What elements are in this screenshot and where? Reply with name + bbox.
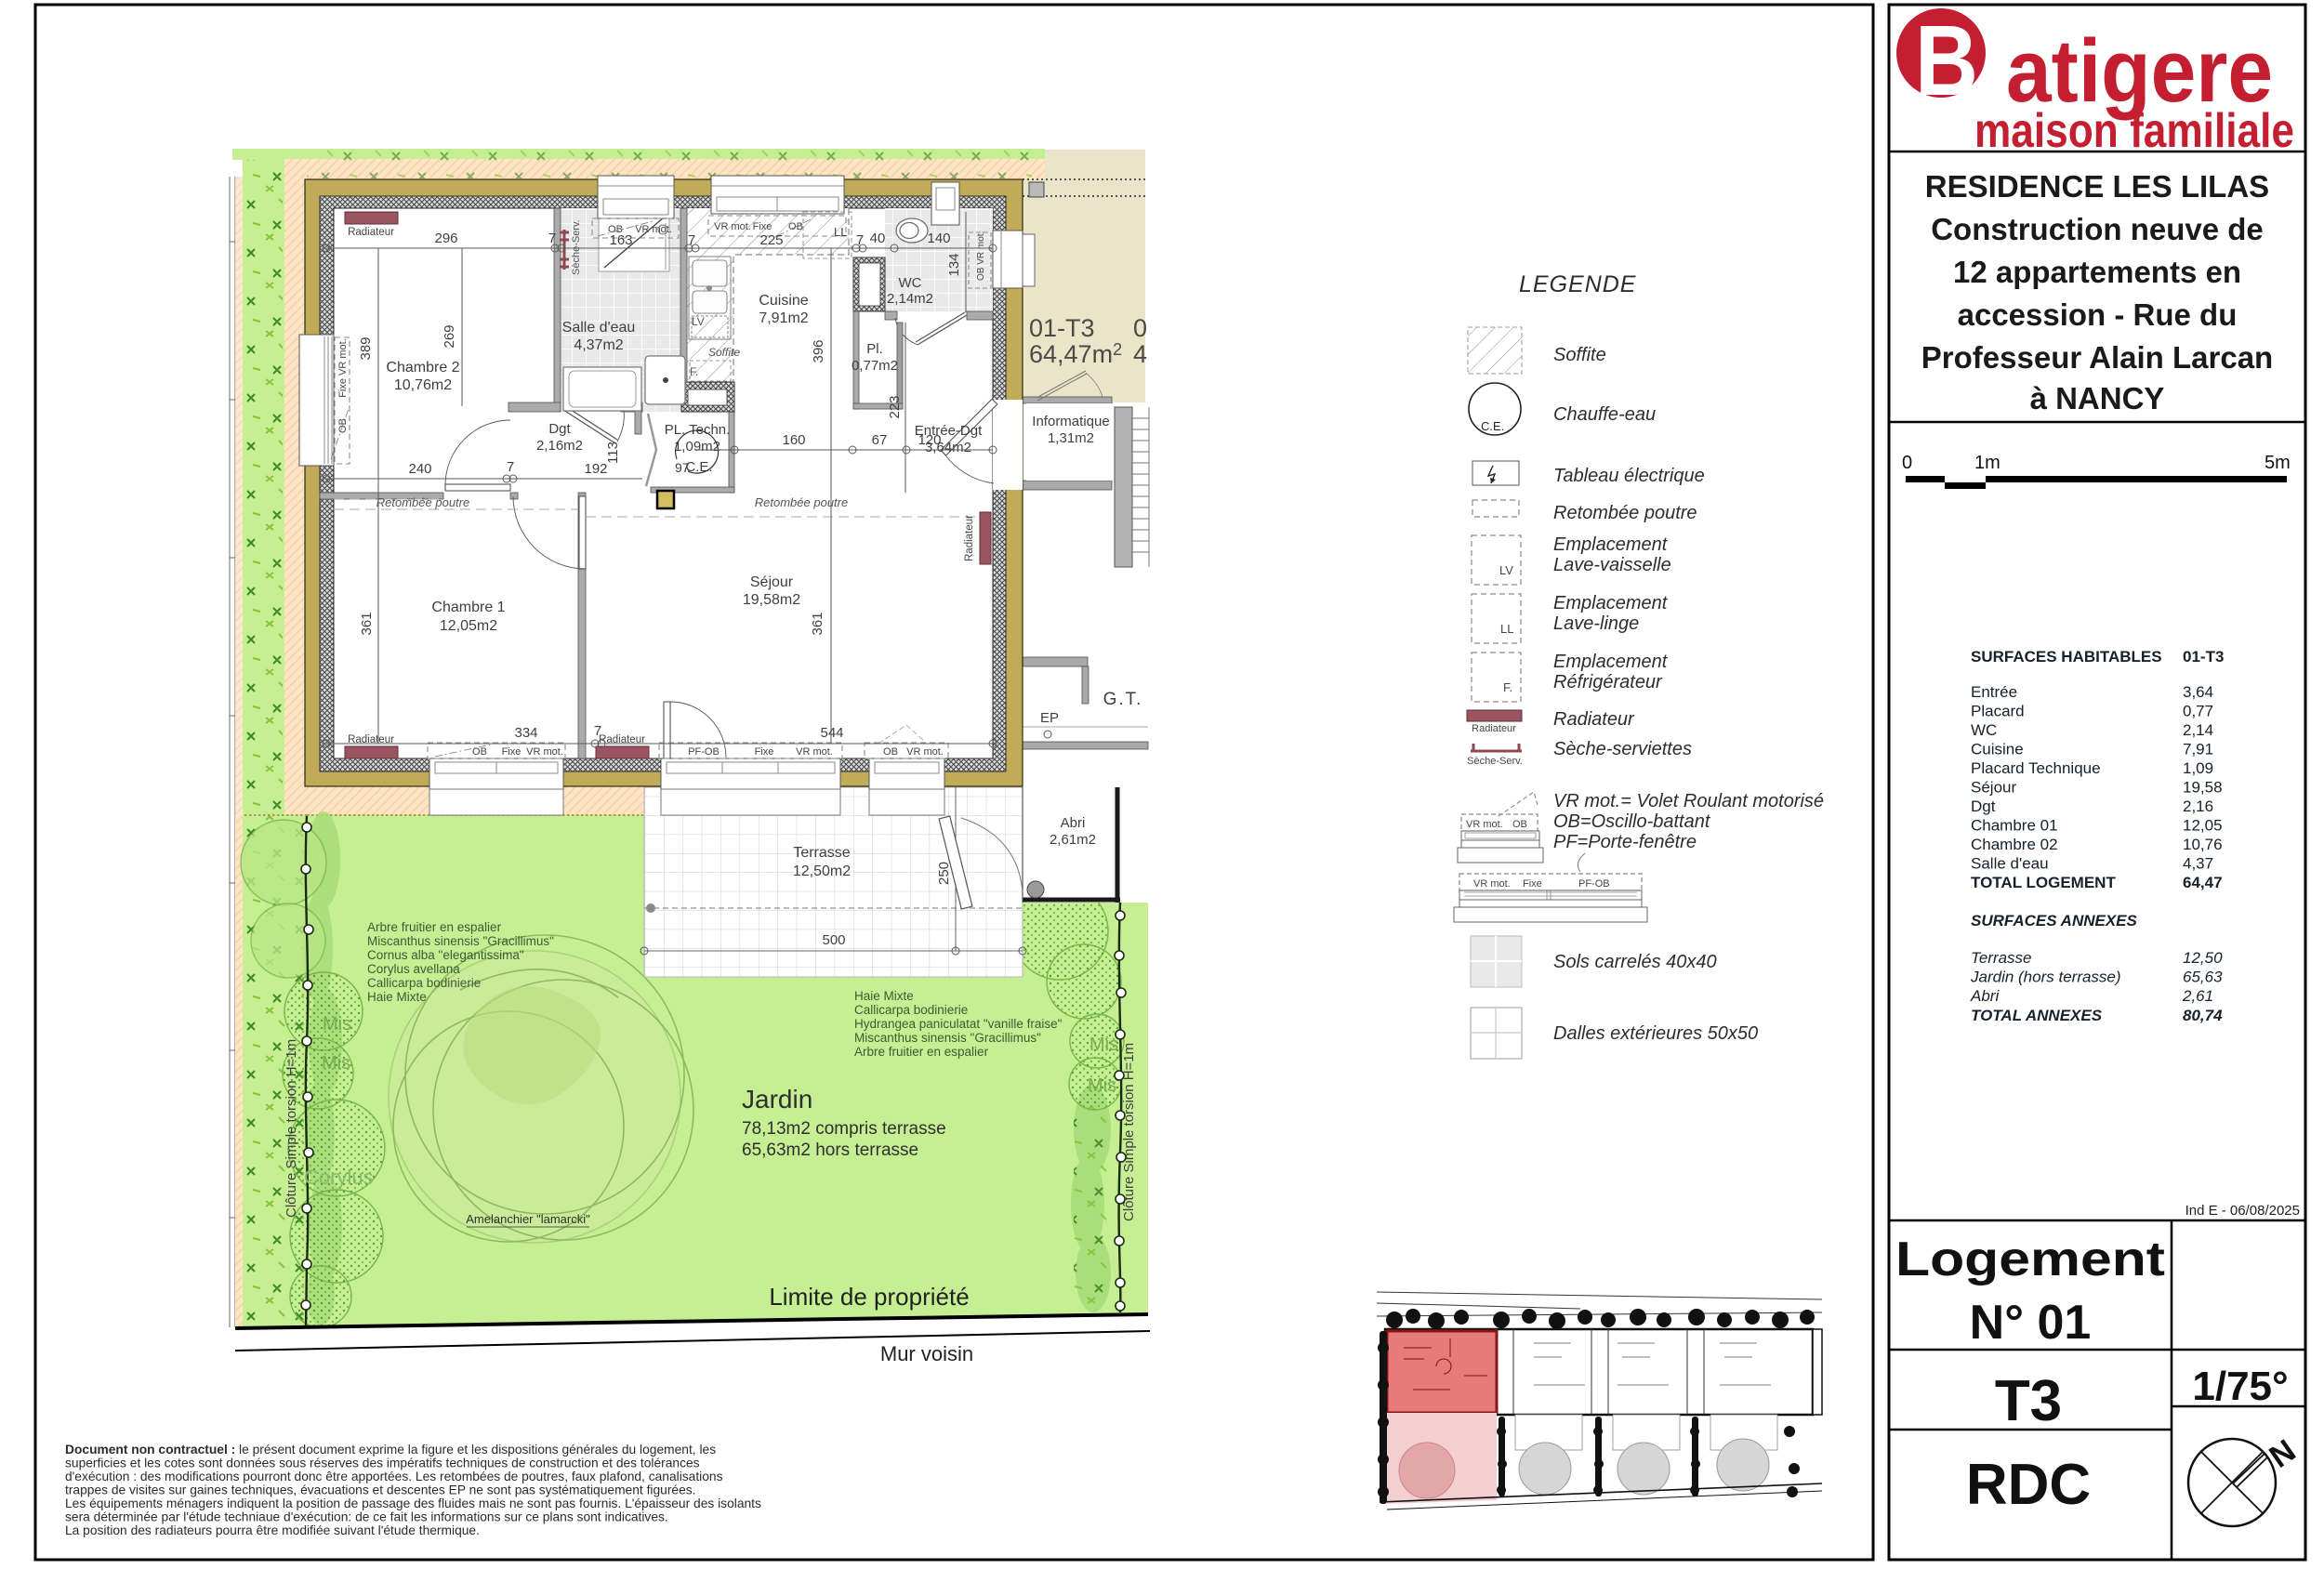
- svg-text:67: 67: [872, 432, 888, 448]
- svg-text:0,77m2: 0,77m2: [852, 358, 898, 374]
- svg-text:12,05m2: 12,05m2: [440, 618, 497, 634]
- svg-text:Logement: Logement: [1895, 1233, 2165, 1286]
- svg-text:PF-OB: PF-OB: [1578, 878, 1610, 890]
- svg-text:LL: LL: [1500, 622, 1513, 636]
- svg-text:Radiateur: Radiateur: [1553, 709, 1635, 730]
- svg-text:trappes de visites sur gaines: trappes de visites sur gaines techniques…: [65, 1483, 696, 1497]
- svg-text:Informatique: Informatique: [1032, 414, 1109, 429]
- svg-text:sera déterminée par l'étude te: sera déterminée par l'étude techniaue d'…: [65, 1510, 668, 1524]
- svg-text:7,91m2: 7,91m2: [759, 310, 808, 326]
- svg-text:Mur voisin: Mur voisin: [880, 1342, 973, 1365]
- svg-text:160: 160: [782, 432, 805, 448]
- svg-text:Fixe VR mot.: Fixe VR mot.: [337, 338, 349, 398]
- svg-text:VR mot.: VR mot.: [714, 221, 751, 232]
- svg-text:240: 240: [408, 461, 431, 477]
- svg-text:WC: WC: [1971, 721, 1997, 739]
- svg-text:OB=Oscillo-battant: OB=Oscillo-battant: [1553, 811, 1711, 832]
- svg-text:à NANCY: à NANCY: [2030, 381, 2165, 415]
- svg-text:Arbre fruitier en espalier: Arbre fruitier en espalier: [854, 1045, 989, 1059]
- svg-text:VR mot.: VR mot.: [635, 224, 672, 235]
- svg-text:RESIDENCE LES LILAS: RESIDENCE LES LILAS: [1925, 169, 2269, 204]
- svg-text:Chauffe-eau: Chauffe-eau: [1553, 404, 1656, 425]
- svg-text:Retombée poutre: Retombée poutre: [1553, 503, 1697, 523]
- svg-text:OB VR mot.: OB VR mot.: [976, 231, 986, 281]
- svg-text:VR mot.: VR mot.: [1466, 819, 1503, 830]
- svg-text:Sèche-Serv.: Sèche-Serv.: [571, 219, 582, 275]
- svg-text:Limite de propriété: Limite de propriété: [769, 1283, 969, 1311]
- svg-text:01-T3: 01-T3: [1029, 314, 1095, 342]
- svg-text:225: 225: [759, 232, 783, 248]
- svg-text:Haie Mixte: Haie Mixte: [854, 989, 914, 1003]
- svg-text:361: 361: [359, 612, 375, 635]
- svg-text:2,14: 2,14: [2183, 721, 2213, 739]
- svg-text:10,76m2: 10,76m2: [394, 377, 452, 393]
- svg-text:Jardin (hors terrasse): Jardin (hors terrasse): [1970, 969, 2121, 986]
- svg-text:80,74: 80,74: [2183, 1007, 2223, 1024]
- svg-text:Réfrigérateur: Réfrigérateur: [1553, 672, 1663, 692]
- svg-text:SURFACES HABITABLES: SURFACES HABITABLES: [1971, 648, 2162, 666]
- svg-text:134: 134: [946, 253, 962, 276]
- svg-text:Mis: Mis: [1088, 1075, 1116, 1096]
- svg-text:T3: T3: [1995, 1369, 2062, 1433]
- svg-text:Miscanthus sinensis "Gracillim: Miscanthus sinensis "Gracillimus": [367, 934, 554, 948]
- svg-text:2,16m2: 2,16m2: [536, 438, 583, 454]
- svg-text:64,47: 64,47: [2183, 874, 2223, 891]
- svg-text:01-T3: 01-T3: [2183, 648, 2224, 666]
- svg-text:OB: OB: [883, 746, 898, 758]
- svg-text:LEGENDE: LEGENDE: [1519, 271, 1636, 297]
- svg-text:Fixe: Fixe: [1523, 878, 1542, 890]
- svg-text:7,91: 7,91: [2183, 741, 2213, 758]
- svg-text:Les équipements ménagers indiq: Les équipements ménagers indiquent la po…: [65, 1496, 761, 1510]
- svg-text:Soffite: Soffite: [1553, 345, 1606, 365]
- svg-text:140: 140: [927, 231, 950, 246]
- svg-text:113: 113: [605, 442, 621, 464]
- svg-text:Placard Technique: Placard Technique: [1971, 759, 2101, 777]
- svg-text:Fixe: Fixe: [502, 746, 522, 758]
- svg-text:LV: LV: [692, 315, 705, 328]
- svg-text:Abri: Abri: [1061, 815, 1086, 831]
- svg-text:WC: WC: [899, 275, 922, 291]
- svg-text:Dgt: Dgt: [548, 421, 571, 437]
- svg-text:Corylus avellana: Corylus avellana: [367, 962, 460, 976]
- svg-text:Ind E - 06/08/2025: Ind E - 06/08/2025: [2185, 1203, 2300, 1219]
- svg-text:Tableau électrique: Tableau électrique: [1553, 466, 1705, 486]
- svg-text:Cornus alba "elegantissima": Cornus alba "elegantissima": [367, 948, 524, 962]
- svg-text:Construction neuve de: Construction neuve de: [1931, 212, 2264, 246]
- svg-text:Callicarpa bodinierie: Callicarpa bodinierie: [367, 976, 481, 990]
- svg-text:Radiateur: Radiateur: [1472, 723, 1516, 734]
- svg-text:10,76: 10,76: [2183, 836, 2223, 853]
- svg-text:VR mot.= Volet Roulant motoris: VR mot.= Volet Roulant motorisé: [1553, 791, 1824, 811]
- svg-text:4: 4: [1133, 340, 1147, 368]
- svg-text:VR mot.: VR mot.: [796, 746, 833, 758]
- svg-text:Emplacement: Emplacement: [1553, 652, 1669, 672]
- svg-text:Dalles extérieures 50x50: Dalles extérieures 50x50: [1553, 1023, 1758, 1044]
- svg-text:1,09: 1,09: [2183, 759, 2213, 777]
- svg-text:12 appartements en: 12 appartements en: [1953, 255, 2241, 289]
- svg-text:maison familiale: maison familiale: [1974, 104, 2294, 158]
- svg-text:Sèche-Serv.: Sèche-Serv.: [1467, 756, 1523, 767]
- svg-text:2,61m2: 2,61m2: [1050, 832, 1096, 848]
- svg-text:Arbre fruitier en espalier: Arbre fruitier en espalier: [367, 920, 502, 934]
- svg-text:Miscanthus sinensis "Gracillim: Miscanthus sinensis "Gracillimus": [854, 1031, 1041, 1045]
- svg-text:Radiateur: Radiateur: [964, 515, 975, 561]
- svg-text:1/75°: 1/75°: [2192, 1364, 2288, 1409]
- svg-text:VR mot.: VR mot.: [1473, 878, 1511, 890]
- svg-text:La position des radiateurs pou: La position des radiateurs pourra être m…: [65, 1523, 480, 1537]
- svg-text:C.E.: C.E.: [685, 459, 712, 475]
- svg-text:0: 0: [1902, 453, 1912, 473]
- svg-text:12,05: 12,05: [2183, 817, 2223, 835]
- svg-text:223: 223: [887, 395, 903, 418]
- svg-text:VR mot.: VR mot.: [906, 746, 944, 758]
- svg-text:269: 269: [442, 324, 457, 348]
- svg-text:PF=Porte-fenêtre: PF=Porte-fenêtre: [1553, 832, 1697, 852]
- svg-text:120: 120: [918, 432, 941, 448]
- svg-text:Emplacement: Emplacement: [1553, 593, 1669, 613]
- svg-text:Pl.: Pl.: [866, 341, 883, 357]
- svg-text:Chambre 1: Chambre 1: [431, 600, 505, 615]
- svg-text:7: 7: [507, 459, 514, 475]
- svg-text:19,58: 19,58: [2183, 779, 2223, 797]
- svg-text:192: 192: [584, 461, 607, 477]
- svg-text:VR mot.: VR mot.: [526, 746, 563, 758]
- svg-text:Corylus: Corylus: [304, 1166, 374, 1189]
- svg-text:78,13m2 compris terrasse: 78,13m2 compris terrasse: [742, 1119, 946, 1139]
- svg-text:0: 0: [1133, 314, 1147, 342]
- svg-text:Terrasse: Terrasse: [1971, 949, 2032, 967]
- svg-text:5m: 5m: [2265, 453, 2291, 473]
- svg-text:500: 500: [822, 932, 845, 948]
- svg-text:OB: OB: [1512, 819, 1527, 830]
- svg-text:Mis: Mis: [1089, 1035, 1118, 1055]
- svg-text:LL: LL: [834, 225, 847, 239]
- svg-text:65,63: 65,63: [2183, 969, 2223, 986]
- svg-text:Chambre 2: Chambre 2: [386, 360, 459, 376]
- svg-text:12,50m2: 12,50m2: [793, 864, 851, 879]
- svg-text:Placard: Placard: [1971, 703, 2025, 720]
- svg-text:Radiateur: Radiateur: [348, 227, 394, 238]
- svg-text:TOTAL LOGEMENT: TOTAL LOGEMENT: [1971, 874, 2116, 891]
- svg-text:Clôture Simple torsion H=1m: Clôture Simple torsion H=1m: [1121, 1043, 1137, 1221]
- svg-text:1m: 1m: [1974, 453, 2000, 473]
- svg-text:Séjour: Séjour: [1971, 779, 2016, 797]
- svg-text:65,63m2 hors terrasse: 65,63m2 hors terrasse: [742, 1140, 918, 1160]
- svg-text:334: 334: [514, 725, 537, 741]
- svg-text:Cuisine: Cuisine: [1971, 741, 2024, 758]
- svg-text:Amelanchier "lamarcki": Amelanchier "lamarcki": [466, 1212, 590, 1226]
- svg-text:Chambre 02: Chambre 02: [1971, 836, 2058, 853]
- svg-text:F.: F.: [1503, 680, 1512, 694]
- svg-text:Haie Mixte: Haie Mixte: [367, 990, 427, 1004]
- svg-text:250: 250: [936, 862, 952, 885]
- svg-text:64,47m2: 64,47m2: [1029, 340, 1122, 368]
- svg-text:7: 7: [548, 231, 556, 246]
- svg-text:Hydrangea paniculatat "vanille: Hydrangea paniculatat "vanille fraise": [854, 1017, 1063, 1031]
- svg-text:Fixe: Fixe: [753, 221, 772, 232]
- svg-text:7: 7: [688, 232, 695, 248]
- svg-text:Entrée: Entrée: [1971, 683, 2017, 701]
- svg-text:19,58m2: 19,58m2: [743, 592, 800, 608]
- svg-text:1,31m2: 1,31m2: [1048, 430, 1094, 446]
- svg-text:d'exécution : des modification: d'exécution : des modifications pourront…: [65, 1470, 723, 1483]
- svg-text:296: 296: [434, 231, 457, 246]
- svg-text:1,09m2: 1,09m2: [674, 439, 720, 455]
- svg-text:Callicarpa bodinierie: Callicarpa bodinierie: [854, 1003, 968, 1017]
- svg-text:12,50: 12,50: [2183, 949, 2223, 967]
- svg-text:accession - Rue du: accession - Rue du: [1958, 297, 2238, 332]
- svg-text:Sèche-serviettes: Sèche-serviettes: [1553, 739, 1692, 759]
- svg-text:396: 396: [811, 339, 826, 363]
- svg-text:Sols carrelés 40x40: Sols carrelés 40x40: [1553, 952, 1717, 972]
- svg-text:C.E.: C.E.: [1481, 419, 1504, 433]
- svg-text:Cuisine: Cuisine: [759, 293, 808, 309]
- svg-text:Jardin: Jardin: [742, 1085, 812, 1114]
- svg-text:3,64: 3,64: [2183, 683, 2213, 701]
- svg-text:EP: EP: [1040, 710, 1059, 726]
- svg-text:Salle d'eau: Salle d'eau: [1971, 855, 2049, 873]
- svg-text:Lave-vaisselle: Lave-vaisselle: [1553, 555, 1671, 575]
- svg-text:Abri: Abri: [1970, 987, 2000, 1005]
- svg-text:SURFACES ANNEXES: SURFACES ANNEXES: [1971, 912, 2138, 929]
- svg-text:389: 389: [358, 336, 374, 360]
- svg-text:Lave-linge: Lave-linge: [1553, 613, 1639, 634]
- svg-text:F.: F.: [690, 365, 698, 378]
- svg-text:B: B: [1915, 4, 1978, 116]
- svg-text:Terrasse: Terrasse: [793, 845, 850, 861]
- svg-text:4,37m2: 4,37m2: [574, 337, 623, 353]
- svg-text:Mis: Mis: [323, 1014, 351, 1035]
- svg-text:TOTAL ANNEXES: TOTAL ANNEXES: [1971, 1007, 2103, 1024]
- svg-text:7: 7: [856, 232, 864, 248]
- svg-text:361: 361: [810, 612, 825, 635]
- svg-text:Professeur Alain Larcan: Professeur Alain Larcan: [1921, 340, 2273, 375]
- svg-text:0,77: 0,77: [2183, 703, 2213, 720]
- svg-text:RDC: RDC: [1966, 1453, 2091, 1517]
- svg-text:2,14m2: 2,14m2: [887, 291, 933, 307]
- svg-text:Séjour: Séjour: [750, 574, 794, 590]
- svg-text:163: 163: [609, 232, 632, 248]
- svg-text:2,16: 2,16: [2183, 798, 2213, 815]
- svg-text:40: 40: [870, 231, 886, 246]
- svg-text:N° 01: N° 01: [1970, 1296, 2092, 1350]
- svg-text:2,61: 2,61: [2182, 987, 2213, 1005]
- svg-text:Clôture Simple torsion H=1m: Clôture Simple torsion H=1m: [284, 1039, 299, 1218]
- svg-text:PF-OB: PF-OB: [688, 746, 720, 758]
- svg-text:7: 7: [594, 723, 601, 739]
- svg-text:Mis: Mis: [322, 1053, 350, 1074]
- svg-text:Retombée poutre: Retombée poutre: [376, 495, 469, 509]
- svg-text:Fixe: Fixe: [755, 746, 774, 758]
- svg-text:Document non contractuel : le: Document non contractuel : le présent do…: [65, 1443, 716, 1457]
- svg-text:97: 97: [675, 460, 690, 475]
- svg-text:Dgt: Dgt: [1971, 798, 1996, 815]
- svg-text:544: 544: [820, 725, 843, 741]
- svg-text:Emplacement: Emplacement: [1553, 534, 1669, 555]
- svg-text:superficies et les cotes sont: superficies et les cotes sont données so…: [65, 1457, 700, 1470]
- svg-text:Retombée poutre: Retombée poutre: [755, 495, 848, 509]
- svg-text:LV: LV: [1499, 563, 1513, 577]
- svg-text:Chambre 01: Chambre 01: [1971, 817, 2058, 835]
- svg-text:G.T.: G.T.: [1103, 690, 1143, 709]
- svg-text:Salle d'eau: Salle d'eau: [562, 320, 636, 336]
- svg-text:Soffite: Soffite: [708, 346, 740, 359]
- svg-text:4,37: 4,37: [2183, 855, 2213, 873]
